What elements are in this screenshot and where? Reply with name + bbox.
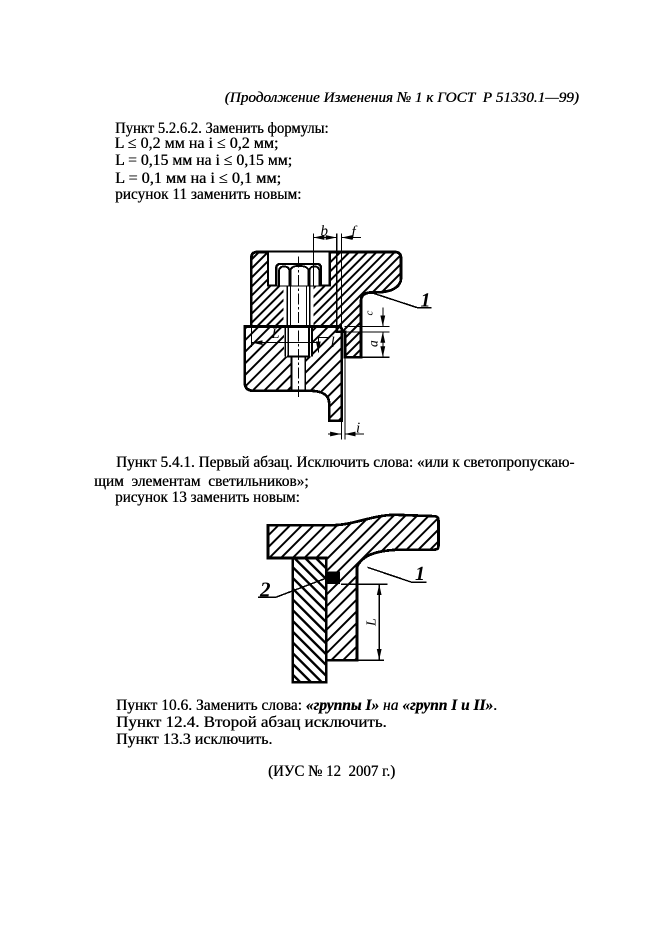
svg-text:1: 1 xyxy=(415,563,425,585)
svg-text:L: L xyxy=(365,618,380,627)
svg-text:l: l xyxy=(330,335,334,351)
svg-text:L: L xyxy=(270,326,279,342)
svg-text:i: i xyxy=(356,421,360,437)
svg-text:b: b xyxy=(320,224,328,240)
svg-text:2: 2 xyxy=(259,577,271,601)
svg-text:a: a xyxy=(366,340,381,347)
svg-text:c: c xyxy=(364,311,376,316)
svg-text:1: 1 xyxy=(420,290,430,312)
